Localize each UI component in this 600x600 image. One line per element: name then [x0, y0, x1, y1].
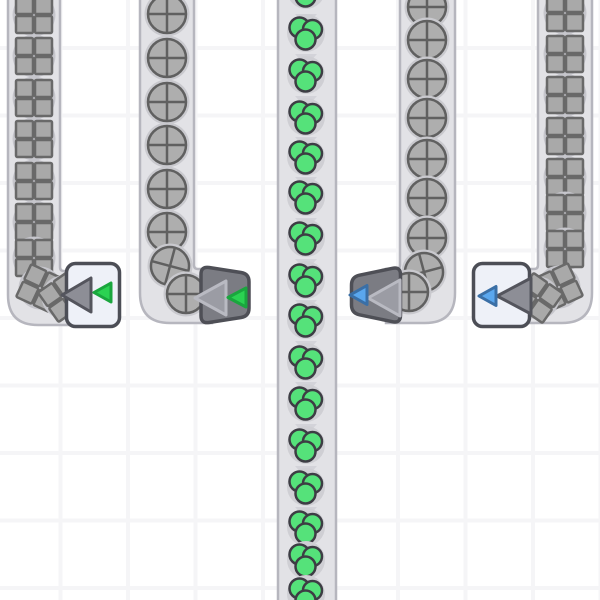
item-berries: [287, 261, 325, 299]
item-square: [544, 115, 587, 158]
item-berries: [287, 219, 325, 257]
item-circle: [405, 18, 450, 63]
building-4[interactable]: [474, 264, 532, 327]
scene-svg: [0, 0, 600, 600]
item-berries: [287, 508, 325, 546]
item-square: [13, 35, 56, 78]
item-square: [13, 0, 56, 37]
item-berries: [287, 468, 325, 506]
item-square: [544, 0, 587, 35]
item-square: [13, 77, 56, 120]
game-viewport[interactable]: [0, 0, 600, 600]
item-berries: [287, 541, 325, 579]
item-berries: [287, 14, 325, 52]
item-circle: [145, 80, 190, 125]
item-circle: [405, 176, 450, 221]
building-1[interactable]: [62, 264, 120, 327]
item-circle: [405, 57, 450, 102]
item-circle: [145, 36, 190, 81]
item-berries: [287, 301, 325, 339]
item-berries: [287, 343, 325, 381]
item-square: [544, 33, 587, 76]
item-square: [13, 118, 56, 161]
item-circle: [405, 137, 450, 182]
building-2[interactable]: [195, 267, 249, 322]
item-berries: [287, 138, 325, 176]
item-berries: [287, 98, 325, 136]
item-berries: [287, 56, 325, 94]
item-square: [13, 160, 56, 203]
item-circle: [405, 96, 450, 141]
building-3[interactable]: [350, 268, 401, 322]
item-berries: [287, 178, 325, 216]
item-berries: [287, 426, 325, 464]
item-berries: [287, 384, 325, 422]
item-circle: [145, 123, 190, 168]
item-square: [544, 74, 587, 117]
belt-c: [278, 0, 336, 600]
item-circle: [145, 167, 190, 212]
